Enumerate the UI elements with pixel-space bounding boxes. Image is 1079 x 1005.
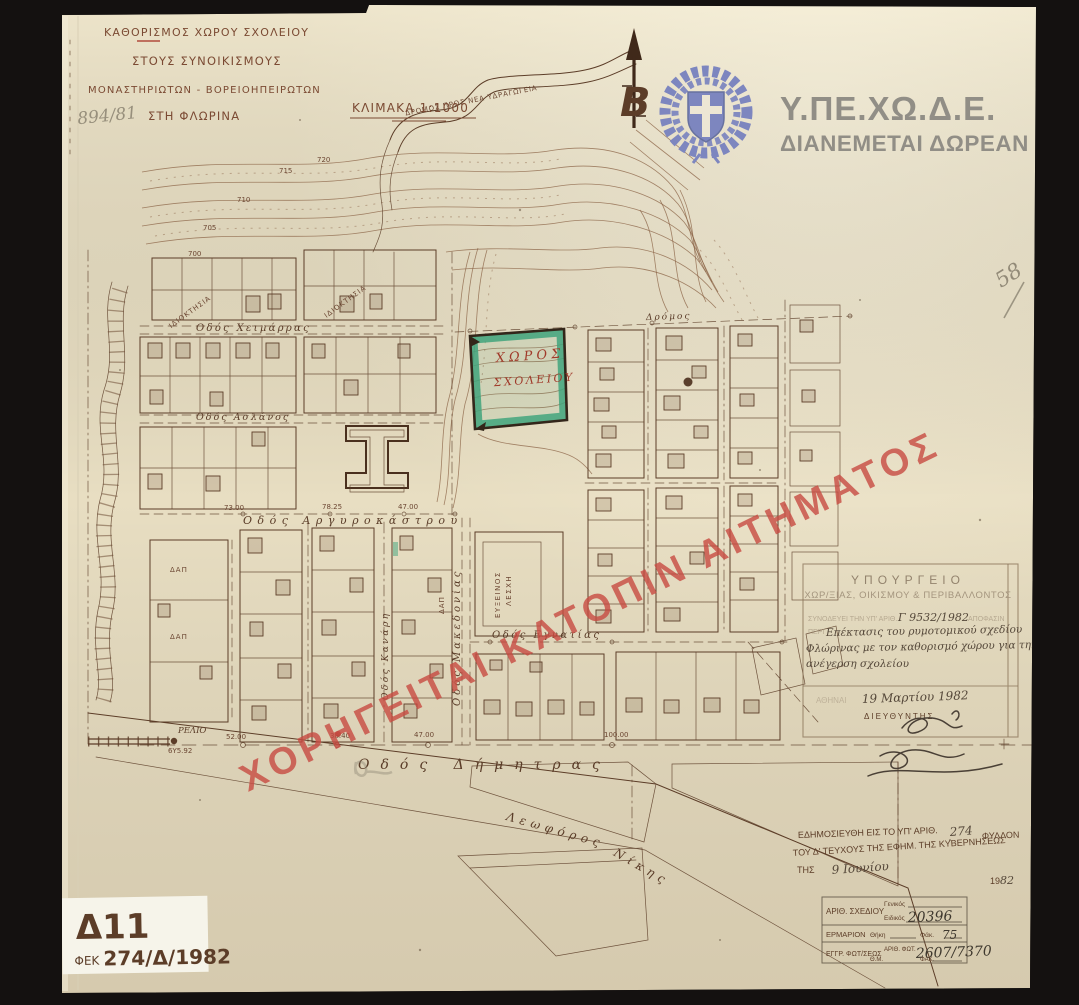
efxinos-label-line2: ΛΕΣΧΗ [505,575,513,606]
title-line1: ΚΑΘΟΡΙΣΜΟΣ ΧΩΡΟΥ ΣΧΟΛΕΙΟΥ [104,26,309,39]
stamp-subject-line3: ανέγερση σχολείου [806,657,910,670]
archive-eidikos-value: 20396 [907,908,953,926]
stamp-peri: ΠΕΡΙ [808,629,824,636]
street-label-argyrokastrou: Οδός Αργυροκάστρου [243,514,463,527]
archive-fak-label: Φάκ. [920,931,934,939]
publication-year-print: 19 [990,876,1000,886]
elevation-label: 715 [279,167,292,175]
fek-prefix: ΦΕΚ [74,954,100,968]
archive-arith-fot-label: ΑΡΙΘ. ΦΩΤ. [884,947,916,953]
elevation-label: 705 [203,224,216,232]
dimension-label: 52.00 [226,733,246,741]
stamp-ref-prefix: ΣΥΝΟΔΕΥΕΙ ΤΗΝ ΥΠ' ΑΡΙΘ. [808,616,897,623]
stamp-ministry-line1: ΥΠΟΥΡΓΕΙΟ [851,573,965,587]
town-plan-scan: 700 705 710 715 720 ΔΡΟΜΟΣ ΠΡΟΣ ΝΕΑ ΥΔΡΑ… [0,0,1079,1005]
benchmark-label: 6Υ5.92 [168,747,192,755]
paper-sheet: 700 705 710 715 720 ΔΡΟΜΟΣ ΠΡΟΣ ΝΕΑ ΥΔΡΑ… [61,5,1038,993]
street-label-chimarras: Οδός Χειμάρρας [196,323,311,334]
archive-thm-label: Θ.Μ. [870,957,883,963]
dap-label: ΔΑΠ [170,566,188,574]
fek-code: Δ11 [76,907,150,948]
fek-number: 274/Δ/1982 [103,944,231,970]
title-line2: ΣΤΟΥΣ ΣΥΝΟΙΚΙΣΜΟΥΣ [132,54,282,68]
dimension-label: 100.00 [604,731,629,739]
dap-label: ΔΑΠ [438,596,446,614]
dimension-label: 47.00 [414,731,434,739]
stamp-ref-suffix: ΑΠΟΦΑΣΙΝ [968,616,1005,623]
dimension-label: 73.00 [224,504,244,512]
stamp-ministry-line2: ΧΩΡ/ΞΙΑΣ, ΟΙΚΙΣΜΟΥ & ΠΕΡΙΒΑΛΛΟΝΤΟΣ [804,590,1011,601]
agency-name: Υ.ΠΕ.ΧΩ.Δ.Ε. [780,90,996,127]
archive-genikos-label: Γενικός [884,900,905,908]
elevation-label: 700 [188,250,201,258]
archive-row1-label: ΑΡΙΘ. ΣΧΕΔΙΟΥ [826,907,885,916]
title-line4: ΣΤΗ ΦΛΩΡΙΝΑ [148,109,240,123]
street-label-dimitras: Οδός Δήμητρας [358,757,611,773]
scale-label: ΚΛΙΜΑΚΑ 1:1000 [352,101,469,115]
stamp-ref-number: Γ 9532/1982 [897,611,969,624]
archive-eidikos-label: Ειδικός [884,914,905,922]
dap-label: ΔΑΠ [170,633,188,641]
archive-fak2-label: ΦΑΚ. [920,957,935,963]
efxinos-label-line1: ΕΥΞΕΙΝΟΣ [494,571,502,618]
north-letter: Β [620,80,651,126]
scanned-town-plan-page: 700 705 710 715 720 ΔΡΟΜΟΣ ΠΡΟΣ ΝΕΑ ΥΔΡΑ… [0,0,1079,1005]
archive-thiki-label: Θήκη [870,932,886,939]
archive-fak-value: 75 [942,928,957,942]
dimension-label: 78.25 [322,503,342,511]
publication-line3-prefix: ΤΗΣ [797,865,815,875]
street-label-aslanos: Οδός Ασλάνος [196,412,290,423]
street-label-dromos: Δρόμος [645,310,692,323]
publication-year-hand: 82 [1000,874,1014,887]
elevation-label: 710 [237,196,250,204]
elevation-label: 720 [317,156,330,164]
title-line3: ΜΟΝΑΣΤΗΡΙΩΤΩΝ - ΒΟΡΕΙΟΗΠΕΙΡΩΤΩΝ [88,85,321,96]
agency-distribution: ΔΙΑΝΕΜΕΤΑΙ ΔΩΡΕΑΝ [780,131,1029,156]
school-site-block: ΧΩΡΟΣ ΣΧΟΛΕΙΟΥ [470,329,575,431]
dimension-label: 47.00 [398,503,418,511]
stamp-place: ΑΘΗΝΑΙ [816,696,847,705]
fek-label: Δ11 ΦΕΚ 274/Δ/1982 [61,895,231,974]
archive-row2-label: ΕΡΜΑΡΙΟΝ [826,930,866,939]
